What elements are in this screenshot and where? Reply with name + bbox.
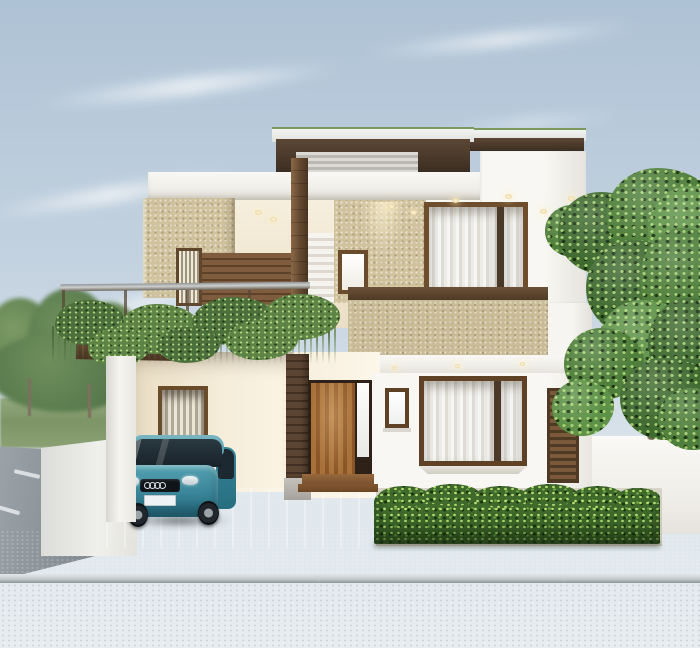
parapet-wall <box>348 300 548 358</box>
lower-bay-window <box>419 376 527 466</box>
light-wash <box>360 202 406 257</box>
window-pane-curtain <box>424 381 494 461</box>
upper-curtained-window <box>424 202 528 294</box>
car-windshield <box>134 439 222 467</box>
car <box>124 433 236 530</box>
car-grille <box>140 479 180 492</box>
door-step <box>302 474 374 484</box>
carport-pillar <box>106 356 136 522</box>
upper-fascia <box>148 172 482 200</box>
window-side-pane <box>504 207 523 289</box>
door-sidelight <box>357 383 369 457</box>
soffit-light <box>520 362 525 366</box>
ceiling-light <box>255 210 262 215</box>
window-pane-curtain <box>429 207 497 289</box>
white-ribbed-panel <box>308 233 334 303</box>
brick-pillar <box>286 354 309 478</box>
ceiling-light <box>452 198 459 203</box>
badge-ring <box>159 482 166 489</box>
ceiling-light <box>388 204 395 209</box>
window-sill <box>383 428 411 432</box>
entry-door <box>311 383 355 475</box>
hedge-bump <box>616 488 660 508</box>
curb-line <box>0 574 700 583</box>
soffit-light <box>455 364 460 368</box>
headlight-right <box>182 476 198 485</box>
door-step-lower <box>298 484 378 492</box>
tree-trunk <box>28 378 31 416</box>
ceiling-light <box>270 217 277 222</box>
ceiling-light <box>540 209 547 214</box>
soffit-light <box>392 366 397 370</box>
hedge-shadow <box>374 542 660 548</box>
street <box>0 583 700 648</box>
ceiling-light <box>505 194 512 199</box>
wheel-front-right <box>198 501 219 525</box>
small-lower-window <box>385 388 409 428</box>
bay-window-base <box>419 466 527 474</box>
tree-trunk <box>88 384 91 418</box>
hedge-bump <box>522 484 578 506</box>
architectural-rendering <box>0 0 700 648</box>
hedge-bump <box>424 484 480 506</box>
license-plate <box>144 495 176 506</box>
hedge-bump <box>378 486 430 508</box>
ceiling-light <box>410 210 417 215</box>
hedge-bump <box>474 486 528 508</box>
window-side-pane <box>501 381 522 461</box>
